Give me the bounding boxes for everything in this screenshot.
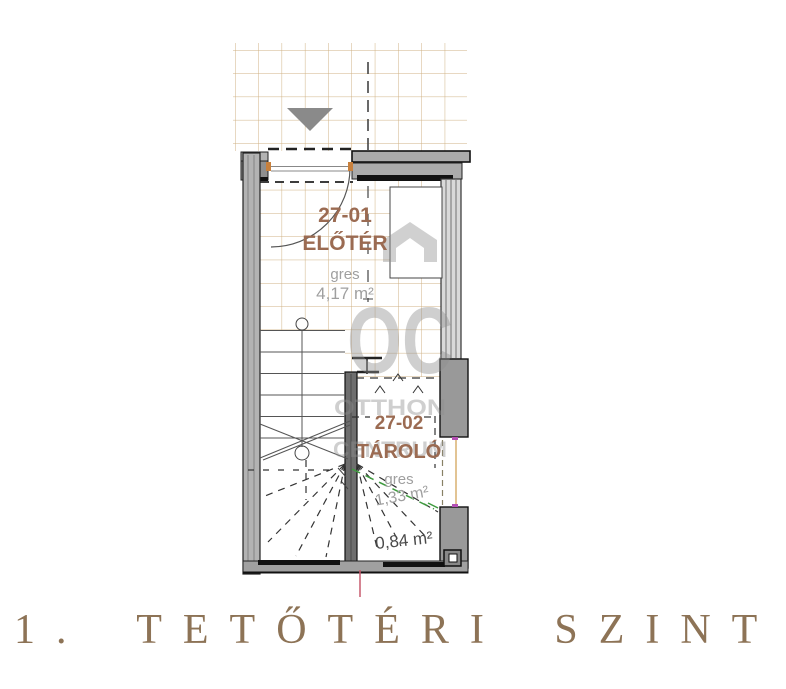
room-tarolo-name: TÁROLÓ — [357, 439, 441, 463]
room-eloter-area: 4,17 m² — [316, 284, 374, 303]
floorplan-page: OC OTTHON CENTRUM 27-01 ELŐTÉR gres 4,17… — [0, 0, 786, 689]
room-tarolo-labels: 27-02 TÁROLÓ gres 1,33 m² 0,84 m² — [357, 413, 441, 553]
watermark-logo: OC — [347, 288, 453, 394]
room-eloter-name: ELŐTÉR — [302, 232, 387, 255]
low-headroom-area: 0,84 m² — [374, 528, 434, 553]
door-jamb-left — [266, 162, 271, 171]
opening-marker-top — [452, 437, 458, 440]
room-tarolo-id: 27-02 — [375, 413, 424, 434]
stair-walkline-turn — [295, 446, 309, 460]
stair-walkline-start — [296, 318, 308, 330]
opening-marker-bottom — [452, 504, 458, 507]
floor-title: 1. TETŐTÉRI SZINT — [14, 606, 786, 654]
room-tarolo-area: 1,33 m² — [374, 483, 431, 509]
room-eloter-flooring: gres — [330, 266, 359, 283]
terrace-tile-grid — [233, 43, 467, 151]
room-eloter-id: 27-01 — [318, 204, 372, 227]
floorplan-drawing: OC OTTHON CENTRUM 27-01 ELŐTÉR gres 4,17… — [0, 0, 786, 689]
column-symbol — [444, 550, 461, 566]
room-tarolo-flooring: gres — [384, 471, 413, 488]
door-jamb-right — [348, 162, 353, 171]
